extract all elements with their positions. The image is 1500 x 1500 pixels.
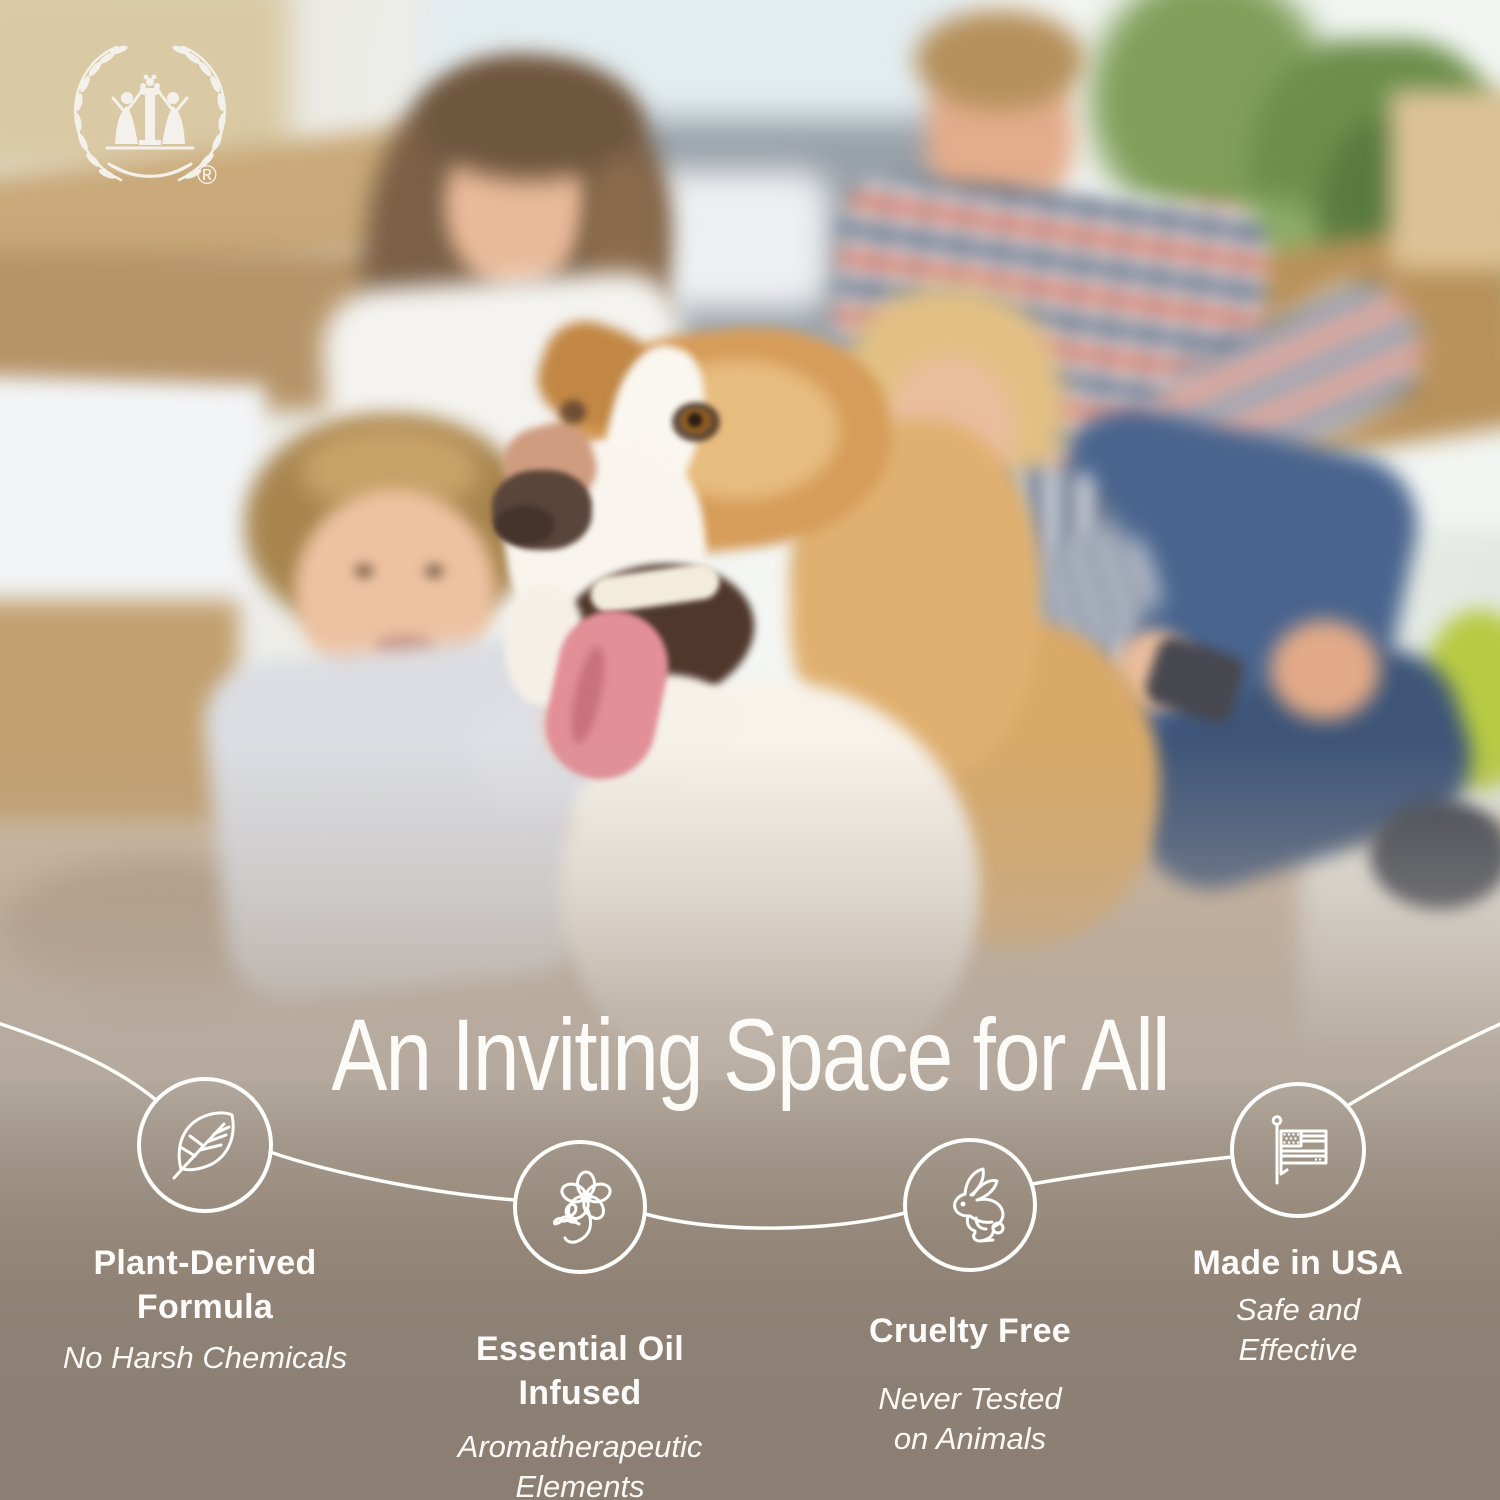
rabbit-icon [955, 1169, 1003, 1241]
flower-icon [554, 1172, 613, 1242]
feature-subtitle: Safe and Effective [1143, 1290, 1453, 1370]
feature-title: Cruelty Free [815, 1309, 1125, 1353]
feature-made-in-usa: Made in USA Safe and Effective [1143, 1241, 1453, 1370]
feature-title: Plant-Derived Formula [45, 1241, 365, 1329]
feature-subtitle: No Harsh Chemicals [45, 1338, 365, 1378]
feature-title: Made in USA [1143, 1241, 1453, 1285]
feature-subtitle: Never Tested on Animals [815, 1379, 1125, 1459]
product-infographic: ® An Inviting Space for All Plant-Derive… [0, 0, 1500, 1500]
flag-usa-icon [1273, 1117, 1326, 1183]
crossed-stems [109, 164, 191, 176]
feature-essential-oil: Essential Oil Infused Aromatherapeutic E… [415, 1327, 745, 1500]
logo-figures-and-fountain [107, 75, 193, 149]
brand-logo: ® [55, 22, 295, 212]
registered-trademark: ® [197, 160, 217, 191]
feature-subtitle: Aromatherapeutic Elements [415, 1427, 745, 1500]
feature-title: Essential Oil Infused [415, 1327, 745, 1415]
headline: An Inviting Space for All [0, 996, 1500, 1114]
feature-cruelty-free: Cruelty Free Never Tested on Animals [815, 1309, 1125, 1459]
leaf-icon [174, 1113, 233, 1178]
feature-plant-derived: Plant-Derived Formula No Harsh Chemicals [45, 1241, 365, 1378]
